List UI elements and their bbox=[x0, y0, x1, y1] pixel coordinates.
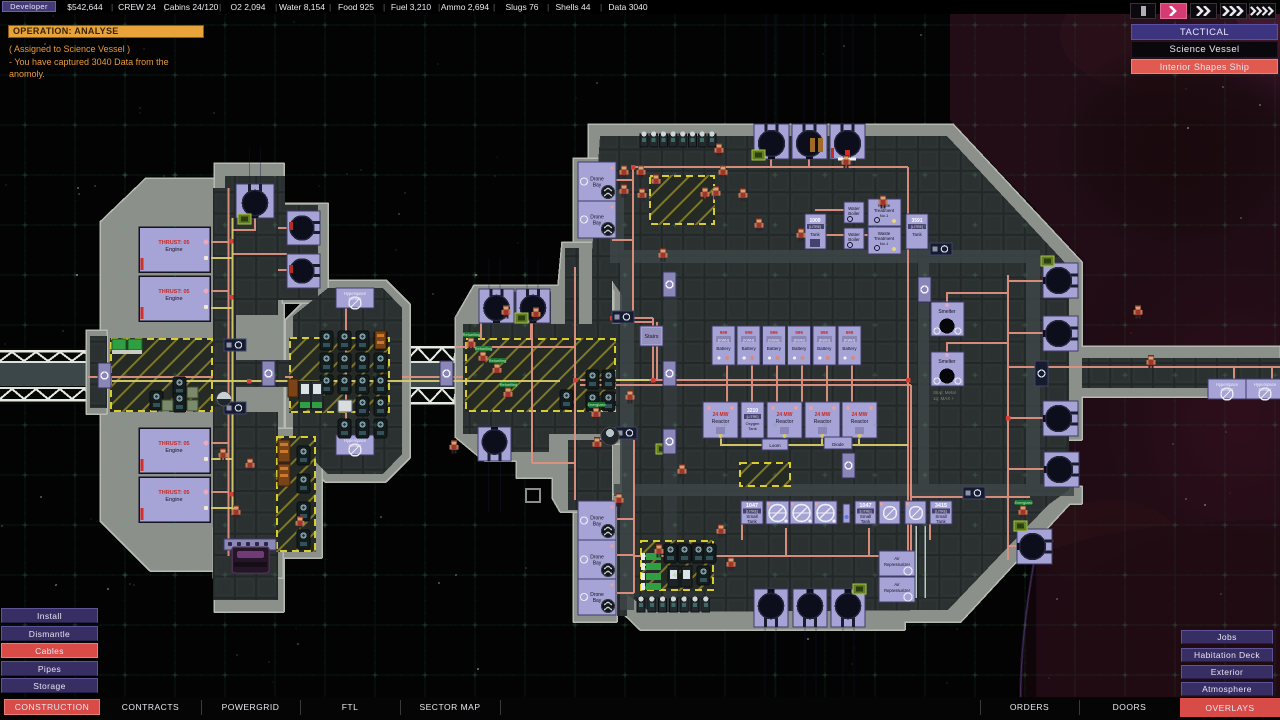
svg-text:Tank: Tank bbox=[748, 426, 756, 431]
svg-text:Stairs: Stairs bbox=[644, 334, 658, 340]
svg-text:Reactor: Reactor bbox=[814, 419, 832, 425]
svg-text:Bay: Bay bbox=[593, 522, 602, 528]
svg-text:Loom: Loom bbox=[769, 443, 781, 448]
svg-text:Refuelling: Refuelling bbox=[500, 382, 518, 387]
svg-text:[KWH]: [KWH] bbox=[844, 339, 855, 343]
svg-text:Battery: Battery bbox=[817, 346, 832, 351]
svg-text:Bay: Bay bbox=[593, 561, 602, 567]
svg-text:Battery: Battery bbox=[792, 346, 807, 351]
svg-text:Engine: Engine bbox=[165, 448, 182, 454]
svg-text:[KWH]: [KWH] bbox=[743, 339, 754, 343]
svg-text:THRUST: 05: THRUST: 05 bbox=[158, 289, 189, 295]
svg-text:999: 999 bbox=[745, 330, 753, 335]
svg-text:24 MW: 24 MW bbox=[815, 412, 831, 418]
svg-text:Diode: Diode bbox=[832, 442, 844, 447]
svg-text:Stop: Metal: Stop: Metal bbox=[933, 390, 956, 395]
svg-text:THRUST: 05: THRUST: 05 bbox=[158, 441, 189, 447]
svg-text:Reactor: Reactor bbox=[776, 419, 794, 425]
svg-text:Tank: Tank bbox=[747, 519, 757, 524]
svg-text:Refuelling: Refuelling bbox=[489, 358, 507, 363]
svg-text:Bay: Bay bbox=[593, 221, 602, 227]
svg-text:Battery: Battery bbox=[842, 346, 857, 351]
svg-text:[LITRE]: [LITRE] bbox=[746, 510, 758, 514]
svg-text:3591: 3591 bbox=[911, 218, 922, 224]
svg-text:1009: 1009 bbox=[809, 218, 820, 224]
svg-text:Engine: Engine bbox=[165, 497, 182, 503]
svg-text:24 MW: 24 MW bbox=[852, 412, 868, 418]
svg-text:[LITRE]: [LITRE] bbox=[860, 510, 872, 514]
svg-text:Refuelling: Refuelling bbox=[463, 332, 481, 337]
svg-text:999: 999 bbox=[846, 330, 854, 335]
svg-text:Bay: Bay bbox=[593, 183, 602, 189]
svg-text:Boiler: Boiler bbox=[848, 211, 860, 216]
svg-text:Energized: Energized bbox=[587, 402, 605, 407]
svg-text:[LITRE]: [LITRE] bbox=[747, 415, 759, 419]
svg-text:999: 999 bbox=[821, 330, 829, 335]
svg-text:1q: MAX +: 1q: MAX + bbox=[933, 396, 955, 401]
svg-text:[KWH]: [KWH] bbox=[794, 339, 805, 343]
svg-text:[KWH]: [KWH] bbox=[718, 339, 729, 343]
svg-text:Tank: Tank bbox=[861, 519, 871, 524]
svg-text:Air: Air bbox=[894, 582, 900, 587]
svg-text:Bay: Bay bbox=[593, 598, 602, 604]
svg-text:999: 999 bbox=[720, 330, 728, 335]
svg-text:[LITRE]: [LITRE] bbox=[911, 225, 923, 229]
svg-text:Repressurizer: Repressurizer bbox=[884, 562, 911, 567]
svg-text:Refuelling: Refuelling bbox=[475, 346, 493, 351]
svg-text:Boiler: Boiler bbox=[848, 237, 860, 242]
svg-text:THRUST: 05: THRUST: 05 bbox=[158, 490, 189, 496]
svg-text:Smelter: Smelter bbox=[938, 359, 956, 365]
svg-text:Battery: Battery bbox=[742, 346, 757, 351]
svg-text:999: 999 bbox=[770, 330, 778, 335]
svg-text:Battery: Battery bbox=[767, 346, 782, 351]
svg-text:Tank: Tank bbox=[810, 232, 820, 237]
svg-text:1047: 1047 bbox=[746, 503, 758, 509]
svg-text:[LITRE]: [LITRE] bbox=[809, 225, 821, 229]
svg-text:Reactor: Reactor bbox=[712, 419, 730, 425]
svg-text:24 MW: 24 MW bbox=[777, 412, 793, 418]
svg-text:[KWH]: [KWH] bbox=[819, 339, 830, 343]
svg-text:Engine: Engine bbox=[165, 247, 182, 253]
svg-text:[KWH]: [KWH] bbox=[768, 339, 779, 343]
svg-text:No.1: No.1 bbox=[880, 241, 889, 246]
svg-text:Engine: Engine bbox=[165, 296, 182, 302]
svg-text:1047: 1047 bbox=[859, 503, 871, 509]
svg-text:Smelter: Smelter bbox=[938, 309, 956, 315]
svg-text:24 MW: 24 MW bbox=[713, 412, 729, 418]
svg-text:Reactor: Reactor bbox=[851, 419, 869, 425]
svg-text:[LITRE]: [LITRE] bbox=[935, 510, 947, 514]
svg-text:3210: 3210 bbox=[747, 408, 758, 414]
svg-text:THRUST: 05: THRUST: 05 bbox=[158, 240, 189, 246]
svg-text:Energized: Energized bbox=[1014, 500, 1032, 505]
svg-text:3415: 3415 bbox=[935, 503, 947, 509]
svg-text:Tank: Tank bbox=[936, 519, 946, 524]
svg-text:Tank: Tank bbox=[912, 232, 922, 237]
svg-text:Repressurizer: Repressurizer bbox=[884, 588, 911, 593]
svg-text:Battery: Battery bbox=[716, 346, 731, 351]
svg-text:No.1: No.1 bbox=[880, 213, 889, 218]
svg-text:999: 999 bbox=[795, 330, 803, 335]
svg-text:Air: Air bbox=[894, 556, 900, 561]
